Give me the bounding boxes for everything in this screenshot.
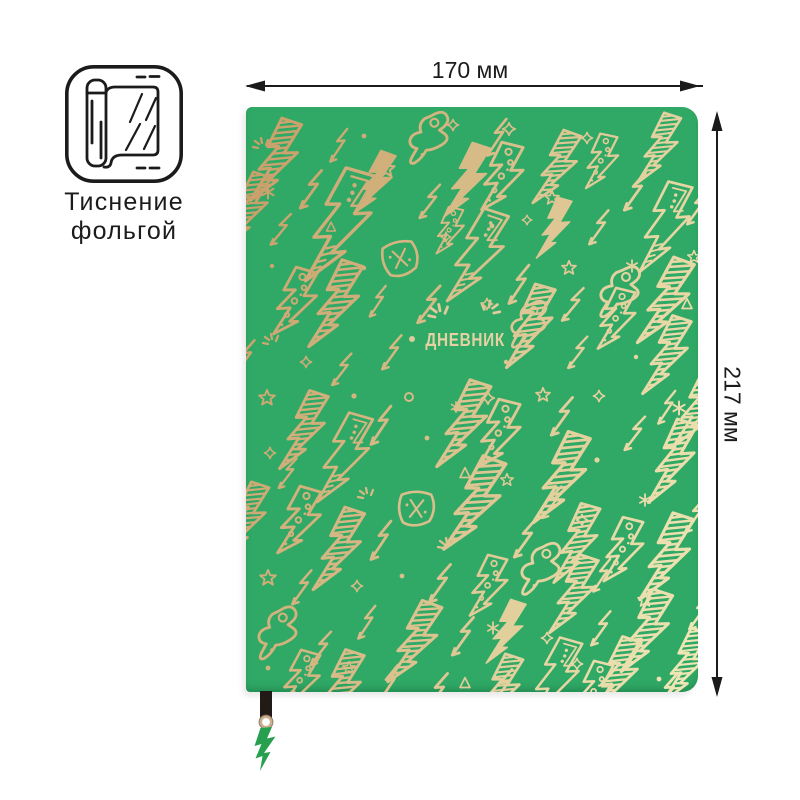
svg-text:ДНЕВНИК: ДНЕВНИК (425, 330, 505, 351)
